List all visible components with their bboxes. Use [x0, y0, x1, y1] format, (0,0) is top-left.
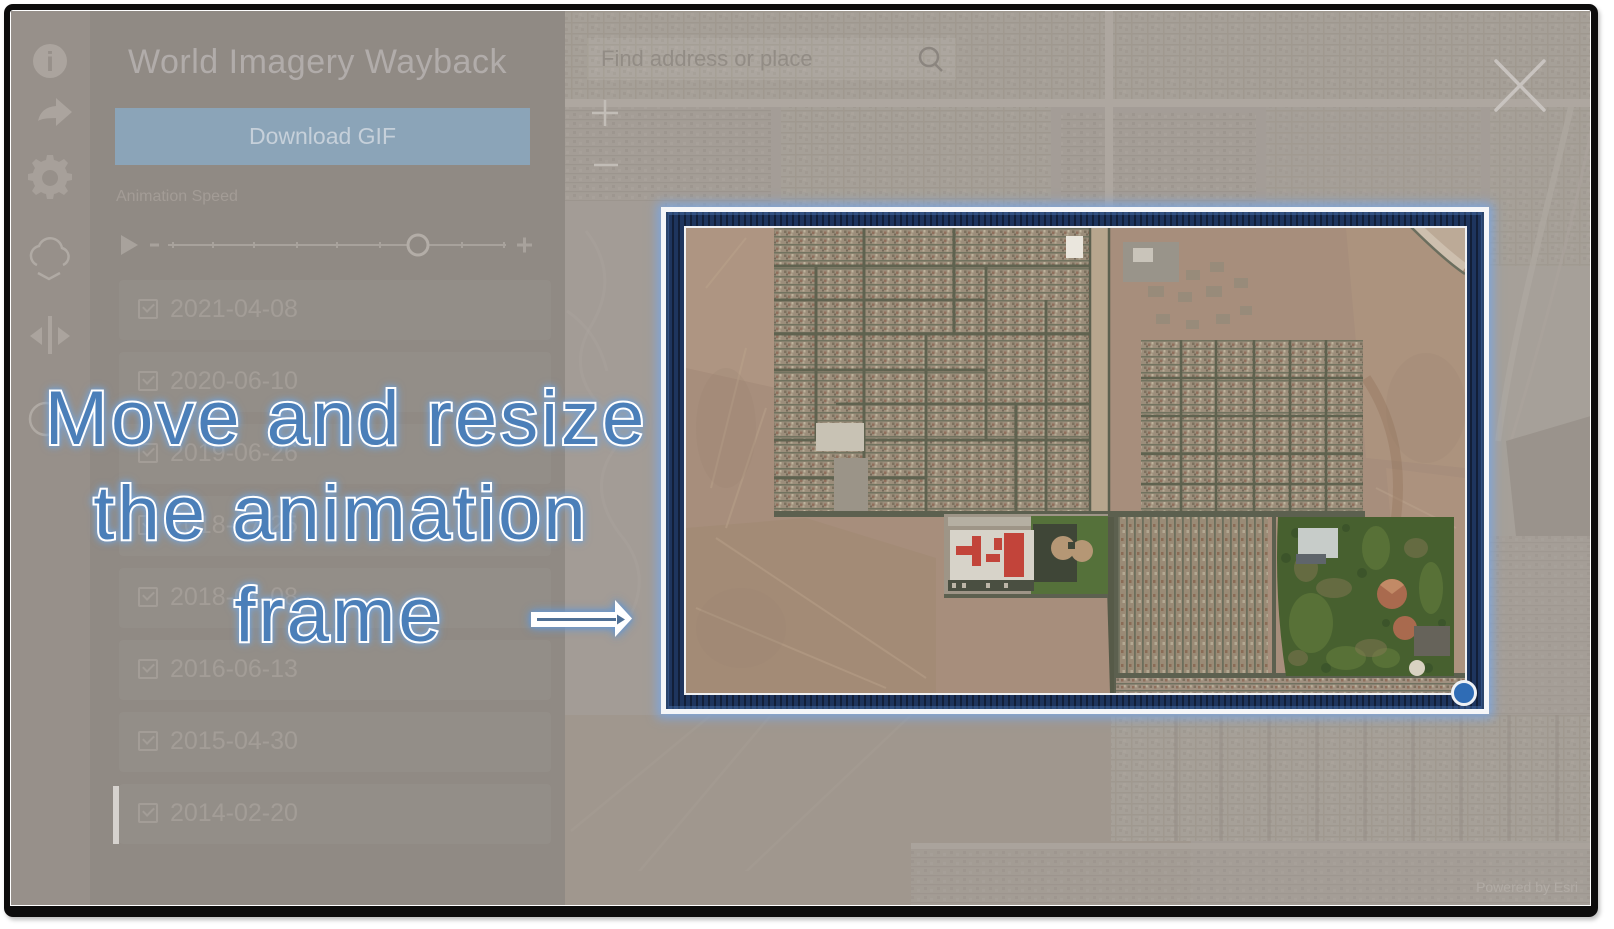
svg-text:i: i — [46, 46, 54, 77]
svg-text:the animation: the animation — [93, 471, 588, 556]
svg-text:Move and resize: Move and resize — [45, 376, 648, 461]
svg-text:frame: frame — [234, 573, 443, 658]
